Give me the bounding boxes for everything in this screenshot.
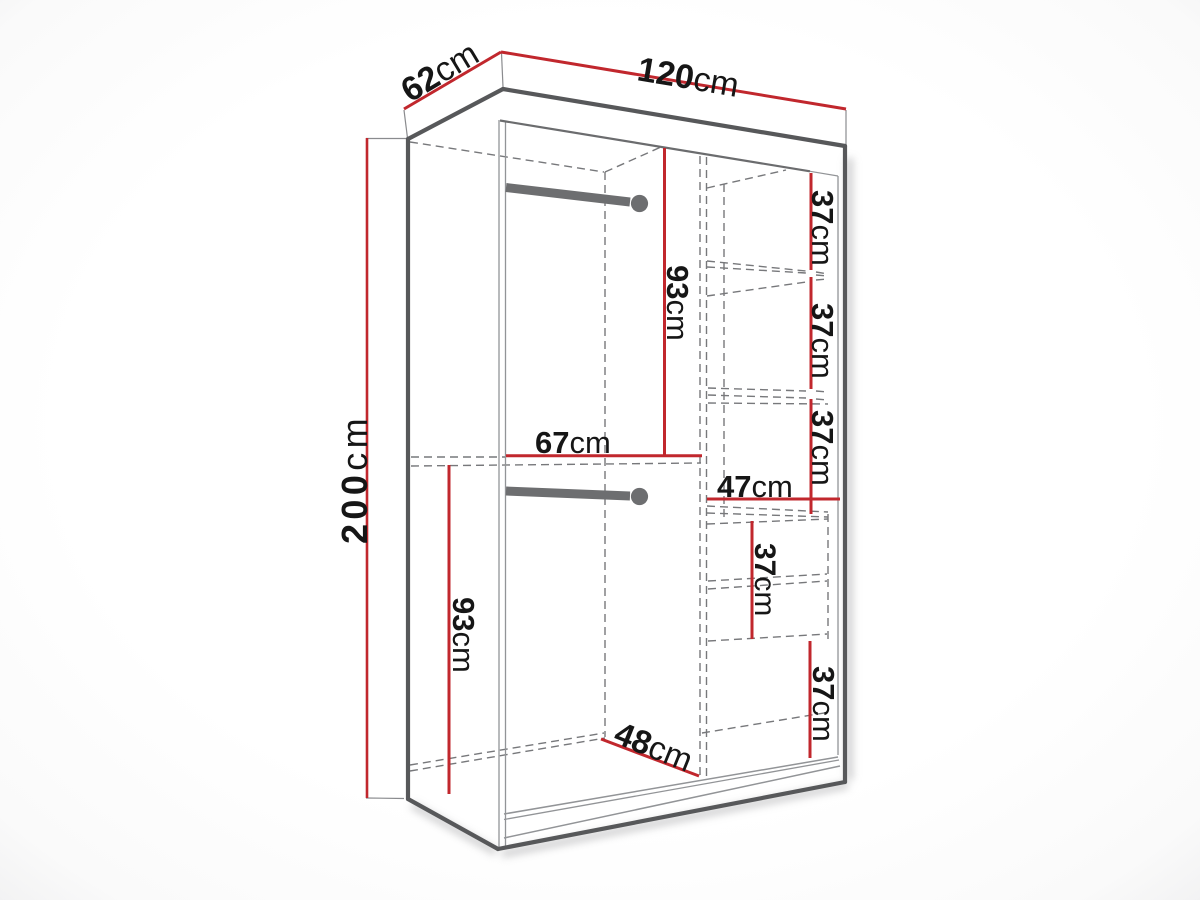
svg-text:200cm: 200cm bbox=[334, 414, 375, 544]
svg-text:37cm: 37cm bbox=[805, 303, 840, 379]
svg-text:93cm: 93cm bbox=[446, 597, 481, 673]
svg-text:37cm: 37cm bbox=[805, 190, 840, 266]
svg-text:37cm: 37cm bbox=[748, 543, 781, 616]
svg-text:37cm: 37cm bbox=[806, 666, 841, 742]
svg-text:67cm: 67cm bbox=[535, 425, 611, 460]
svg-text:37cm: 37cm bbox=[805, 410, 840, 486]
svg-text:47cm: 47cm bbox=[717, 469, 793, 504]
svg-text:93cm: 93cm bbox=[660, 265, 695, 341]
